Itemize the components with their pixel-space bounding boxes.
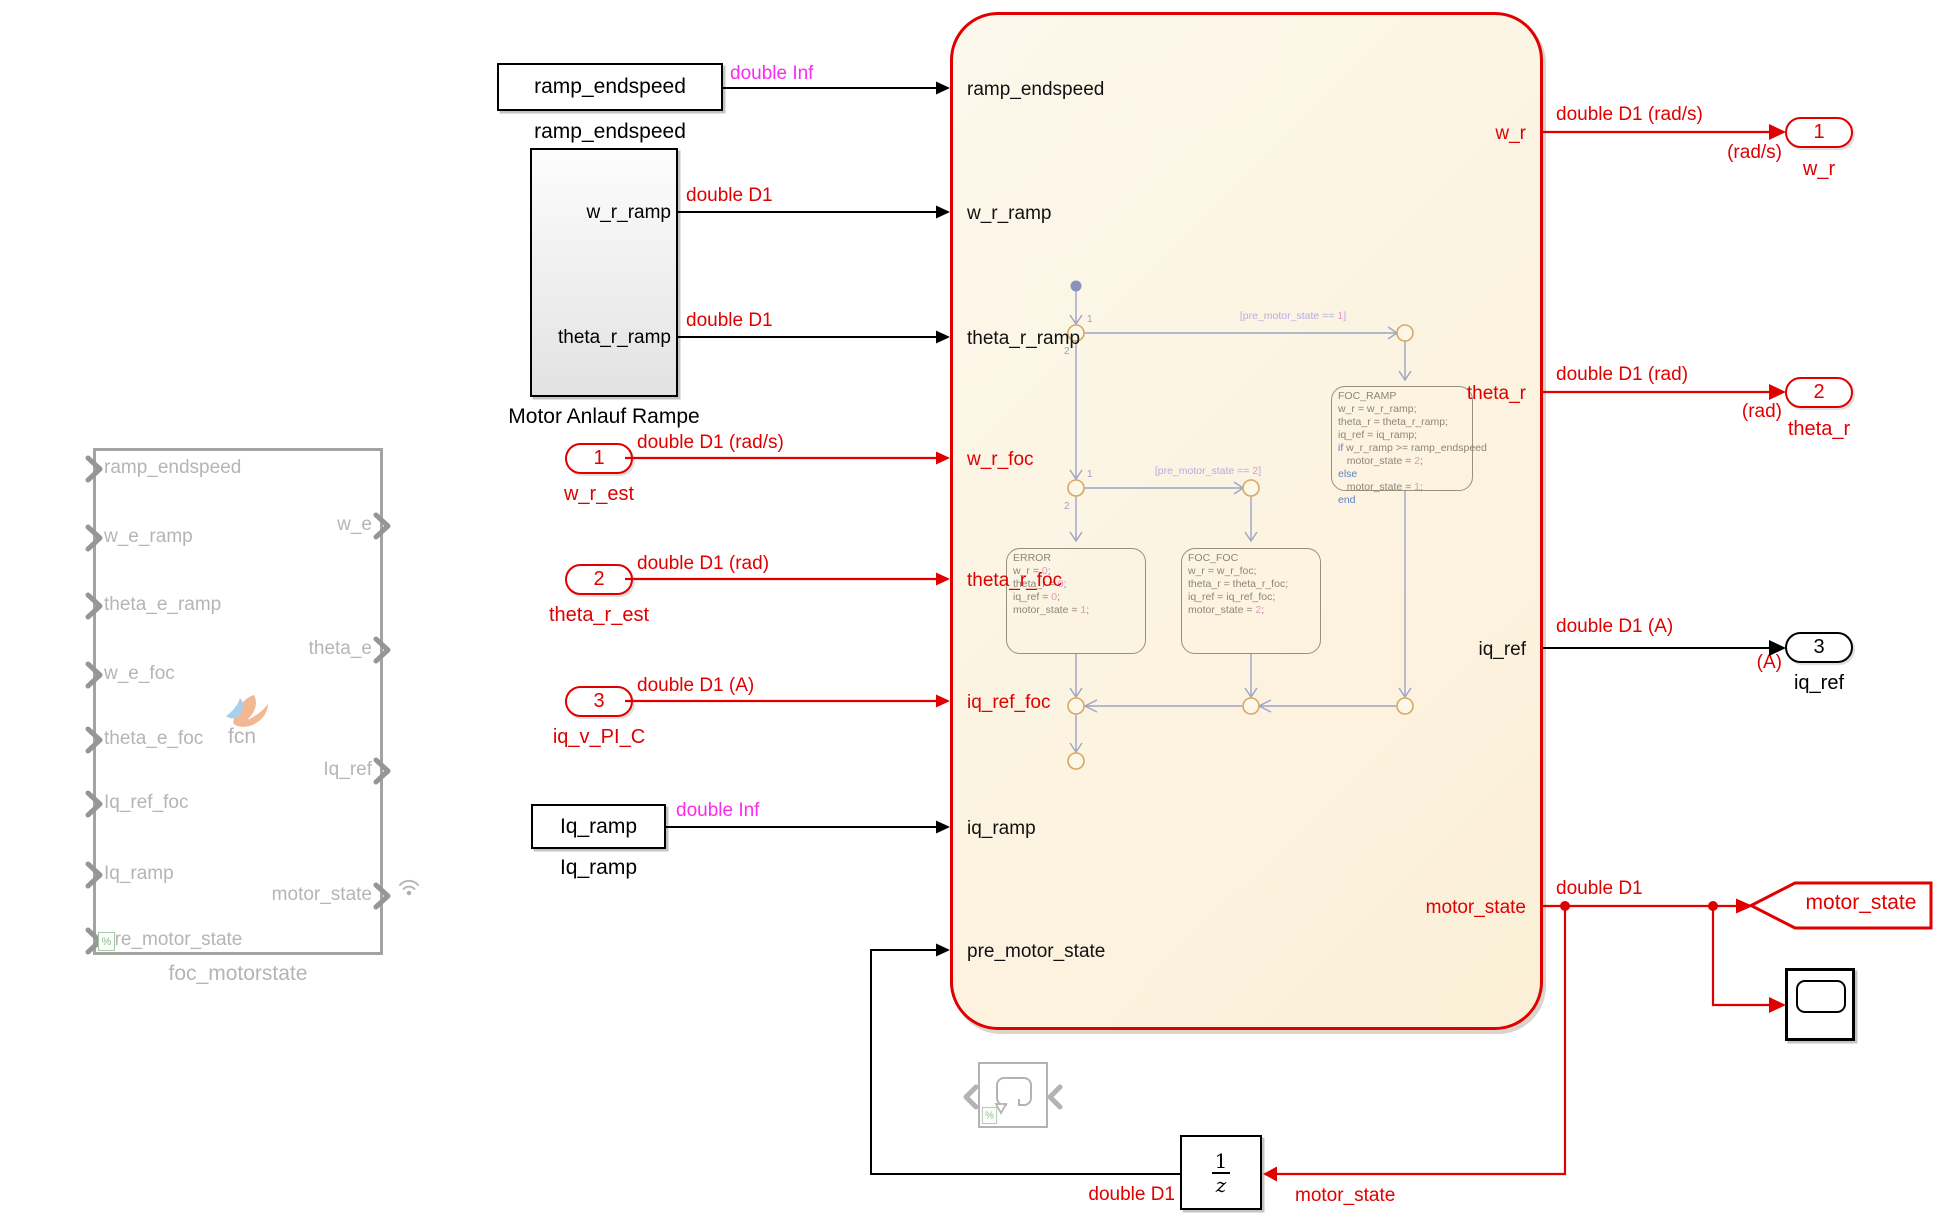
state-code-line: motor_state = 2; (1188, 604, 1314, 617)
input-port-icon (83, 454, 105, 484)
state-foc-ramp-name: FOC_RAMP (1338, 390, 1466, 403)
output-port-icon (371, 511, 393, 541)
state-code-line: motor_state = 1; (1013, 604, 1139, 617)
chart-in-theta-r-foc: theta_r_foc (967, 570, 1062, 592)
ghost-in-w-e-ramp: w_e_ramp (104, 526, 193, 548)
outport-1-number: 1 (1813, 121, 1824, 144)
state-code-line: theta_r = theta_r_foc; (1188, 578, 1314, 591)
outport-2-number: 2 (1813, 381, 1824, 404)
statechart-transitions (953, 15, 1546, 1033)
inport-3-number: 3 (593, 690, 604, 713)
right-port-chevron-icon (1045, 1083, 1065, 1111)
signal-label-double-d1-wramp: double D1 (686, 185, 773, 207)
chart-in-iq-ref-foc: iq_ref_foc (967, 692, 1050, 714)
commented-chart-block[interactable]: % (978, 1062, 1048, 1128)
inport-1[interactable]: 1 (565, 443, 633, 474)
ghost-out-theta-e: theta_e (309, 638, 372, 660)
input-port-icon (83, 591, 105, 621)
signal-label-double-d1-thetaramp: double D1 (686, 310, 773, 332)
state-code-line: iq_ref = iq_ref_foc; (1188, 591, 1314, 604)
ghost-in-iq-ref-foc: Iq_ref_foc (104, 792, 189, 814)
signal-label-theta-r-est-type: double D1 (rad) (637, 553, 769, 575)
unit-delay-numerator: 1 (1215, 1151, 1228, 1171)
transition-priority: 1 (1087, 469, 1093, 480)
inport-2-label: theta_r_est (529, 604, 669, 627)
foc-motorstate-block[interactable]: ramp_endspeed w_e_ramp theta_e_ramp w_e_… (93, 448, 383, 955)
outport-3[interactable]: 3 (1785, 632, 1853, 663)
ghost-out-motor-state: motor_state (272, 884, 372, 906)
outport-1-label: w_r (1769, 158, 1869, 181)
state-code-line: w_r = w_r_ramp; (1338, 403, 1466, 416)
motor-anlauf-rampe-label: Motor Anlauf Rampe (499, 405, 709, 429)
port-label-w-r-ramp: w_r_ramp (587, 202, 671, 224)
goto-tag-motor-state[interactable]: motor_state (1748, 881, 1934, 931)
state-code-line: theta_r = theta_r_ramp; (1338, 416, 1466, 429)
transition-priority: 2 (1064, 501, 1070, 512)
chart-out-w-r: w_r (1495, 123, 1526, 145)
inport-3-label: iq_v_PI_C (534, 726, 664, 749)
signal-label-double-inf-1: double Inf (730, 63, 813, 85)
state-code-line: iq_ref = iq_ramp; (1338, 429, 1466, 442)
input-port-icon (83, 725, 105, 755)
simulink-canvas: ramp_endspeed w_e_ramp theta_e_ramp w_e_… (0, 0, 1939, 1220)
state-error[interactable]: ERROR w_r = 0; theta_r = 0; iq_ref = 0; … (1006, 548, 1146, 654)
state-foc-ramp[interactable]: FOC_RAMP w_r = w_r_ramp; theta_r = theta… (1331, 386, 1473, 491)
inport-3[interactable]: 3 (565, 686, 633, 717)
iq-ramp-constant[interactable]: Iq_ramp (531, 804, 666, 849)
signal-label-iq-v-type: double D1 (A) (637, 675, 754, 697)
input-port-icon (83, 860, 105, 890)
output-port-icon (371, 756, 393, 786)
scope-screen-icon (1796, 980, 1846, 1013)
ghost-out-w-e: w_e (337, 514, 372, 536)
fcn-label: fcn (228, 725, 256, 749)
chart-out-motor-state: motor_state (1426, 897, 1526, 919)
signal-label-theta-r-out: double D1 (rad) (1556, 364, 1688, 386)
state-foc-foc[interactable]: FOC_FOC w_r = w_r_foc; theta_r = theta_r… (1181, 548, 1321, 654)
left-port-chevron-icon (961, 1083, 981, 1111)
ghost-in-ramp-endspeed: ramp_endspeed (104, 457, 241, 479)
ghost-out-iq-ref: Iq_ref (323, 759, 372, 781)
signal-label-w-r-out: double D1 (rad/s) (1556, 104, 1703, 126)
state-code-line: else (1338, 468, 1466, 481)
chart-in-w-r-ramp: w_r_ramp (967, 203, 1051, 225)
wireless-logging-icon (398, 876, 420, 898)
stateflow-chart[interactable]: [pre_motor_state == 1] [pre_motor_state … (950, 12, 1543, 1030)
signal-label-iq-ref-out: double D1 (A) (1556, 616, 1673, 638)
output-port-icon (371, 881, 393, 911)
iq-ramp-constant-text: Iq_ramp (560, 815, 637, 839)
signal-label-motor-state-out: double D1 (1556, 878, 1643, 900)
input-port-icon (83, 523, 105, 553)
ghost-in-w-e-foc: w_e_foc (104, 663, 175, 685)
ghost-in-pre-motor-state: pre_motor_state (104, 929, 242, 951)
outport-3-number: 3 (1813, 636, 1824, 659)
outport-1[interactable]: 1 (1785, 117, 1853, 148)
iq-ramp-constant-label: Iq_ramp (531, 856, 666, 880)
transition-label-1: [pre_motor_state == 1] (1193, 310, 1393, 322)
state-code-line: w_r = w_r_foc; (1188, 565, 1314, 578)
unit-delay-denominator: z (1216, 1175, 1227, 1195)
ghost-block-label: foc_motorstate (93, 962, 383, 986)
outport-2-label: theta_r (1769, 418, 1869, 441)
input-port-icon (83, 660, 105, 690)
transition-label-2: [pre_motor_state == 2] (1108, 465, 1308, 477)
state-code-line: motor_state = 1; (1338, 481, 1466, 494)
state-code-line: if w_r_ramp >= ramp_endspeed (1338, 442, 1466, 455)
inport-1-label: w_r_est (539, 483, 659, 506)
ramp-endspeed-constant-label: ramp_endspeed (497, 120, 723, 144)
goto-tag-label: motor_state (1794, 891, 1928, 915)
chart-in-theta-r-ramp: theta_r_ramp (967, 328, 1080, 350)
chart-in-pre-motor-state: pre_motor_state (967, 941, 1105, 963)
signal-label-double-inf-2: double Inf (676, 800, 759, 822)
state-foc-foc-name: FOC_FOC (1188, 552, 1314, 565)
comment-badge: % (98, 932, 115, 951)
input-port-icon (83, 789, 105, 819)
ramp-endspeed-constant[interactable]: ramp_endspeed (497, 63, 723, 111)
signal-label-delay-in: motor_state (1295, 1185, 1395, 1207)
signal-label-w-r-est-type: double D1 (rad/s) (637, 432, 784, 454)
state-code-line: motor_state = 2; (1338, 455, 1466, 468)
output-port-icon (371, 635, 393, 665)
ghost-in-theta-e-foc: theta_e_foc (104, 728, 203, 750)
signal-label-delay-out: double D1 (1077, 1184, 1175, 1206)
inport-2-number: 2 (593, 568, 604, 591)
unit-delay-block[interactable]: 1 z (1180, 1135, 1262, 1210)
ghost-in-iq-ramp: Iq_ramp (104, 863, 174, 885)
state-error-name: ERROR (1013, 552, 1139, 565)
chart-out-iq-ref: iq_ref (1478, 639, 1526, 661)
chart-in-ramp-endspeed: ramp_endspeed (967, 79, 1104, 101)
comment-badge: % (982, 1107, 997, 1124)
scope-block[interactable] (1785, 968, 1855, 1041)
motor-anlauf-rampe-block[interactable]: w_r_ramp theta_r_ramp (530, 148, 678, 397)
ramp-endspeed-constant-text: ramp_endspeed (534, 75, 686, 99)
inport-2[interactable]: 2 (565, 564, 633, 595)
port-label-theta-r-ramp: theta_r_ramp (558, 327, 671, 349)
outport-2[interactable]: 2 (1785, 377, 1853, 408)
chart-in-w-r-foc: w_r_foc (967, 449, 1034, 471)
chart-out-theta-r: theta_r (1467, 383, 1526, 405)
ghost-in-theta-e-ramp: theta_e_ramp (104, 594, 221, 616)
unit-label-a: (A) (1720, 652, 1782, 674)
outport-3-label: iq_ref (1769, 672, 1869, 695)
inport-1-number: 1 (593, 447, 604, 470)
chart-in-iq-ramp: iq_ramp (967, 818, 1036, 840)
state-code-line: iq_ref = 0; (1013, 591, 1139, 604)
transition-priority: 1 (1087, 314, 1093, 325)
state-code-line: end (1338, 494, 1466, 507)
